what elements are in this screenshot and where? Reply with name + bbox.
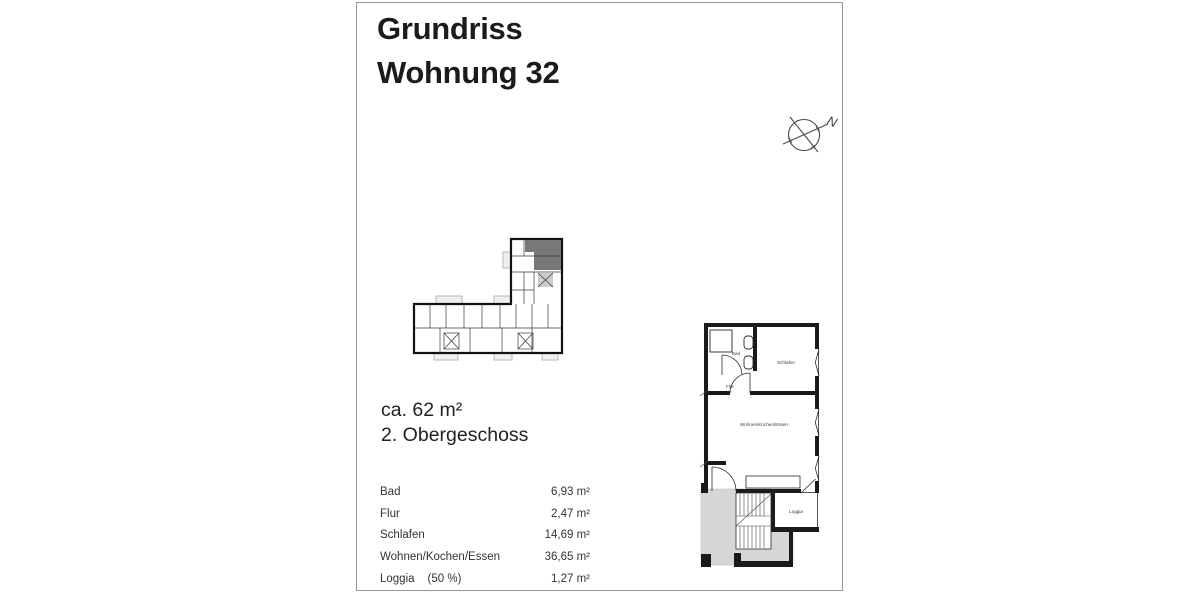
room-area-value: 36,65 m² [545,551,590,563]
plan-sheet: Grundriss Wohnung 32 N [356,2,843,591]
building-overview-plan [406,234,568,362]
room-name: Wohnen/Kochen/Essen [380,551,500,563]
compass-north-label: N [825,113,840,131]
room-name: Bad [380,486,400,498]
table-row: Schlafen 14,69 m² [380,529,590,551]
room-note: (50 %) [428,573,462,585]
highlighted-unit-notch [525,240,534,252]
table-row: Loggia(50 %) 1,27 m² [380,573,590,595]
room-name: Flur [380,508,400,520]
window-symbols [815,349,819,481]
page-title-line1: Grundriss [377,7,559,51]
room-label-schlafen: Schlafen [777,360,795,365]
table-row: Bad 6,93 m² [380,486,590,508]
summary-block: ca. 62 m² 2. Obergeschoss [381,398,528,448]
staircase [736,493,771,549]
room-label-loggia: Loggia [789,509,803,514]
table-row: Flur 2,47 m² [380,508,590,530]
highlighted-unit [534,240,561,270]
room-area-table: Bad 6,93 m² Flur 2,47 m² Schlafen 14,69 … [380,486,590,594]
floor-text: 2. Obergeschoss [381,423,528,448]
room-area-value: 14,69 m² [545,529,590,541]
room-label-flur: Flur [726,384,734,389]
room-label-wohnen: Wohnen/Kochen/Essen [740,422,788,427]
room-name: Loggia [380,573,415,585]
page-title: Grundriss Wohnung 32 [377,7,559,95]
table-row: Wohnen/Kochen/Essen 36,65 m² [380,551,590,573]
room-label-bad: Bad [732,351,741,356]
room-area-value: 6,93 m² [551,486,590,498]
area-text: ca. 62 m² [381,398,528,423]
apartment-floor-plan: Bad Flur Schlafen Wohnen/Kochen/Essen Lo… [698,317,828,581]
room-area-value: 1,27 m² [551,573,590,585]
north-compass-icon: N [781,109,841,159]
page-title-line2: Wohnung 32 [377,51,559,95]
bath-fixtures [710,330,753,369]
kitchen-counter [746,476,800,488]
room-area-value: 2,47 m² [551,508,590,520]
room-name: Schlafen [380,529,425,541]
